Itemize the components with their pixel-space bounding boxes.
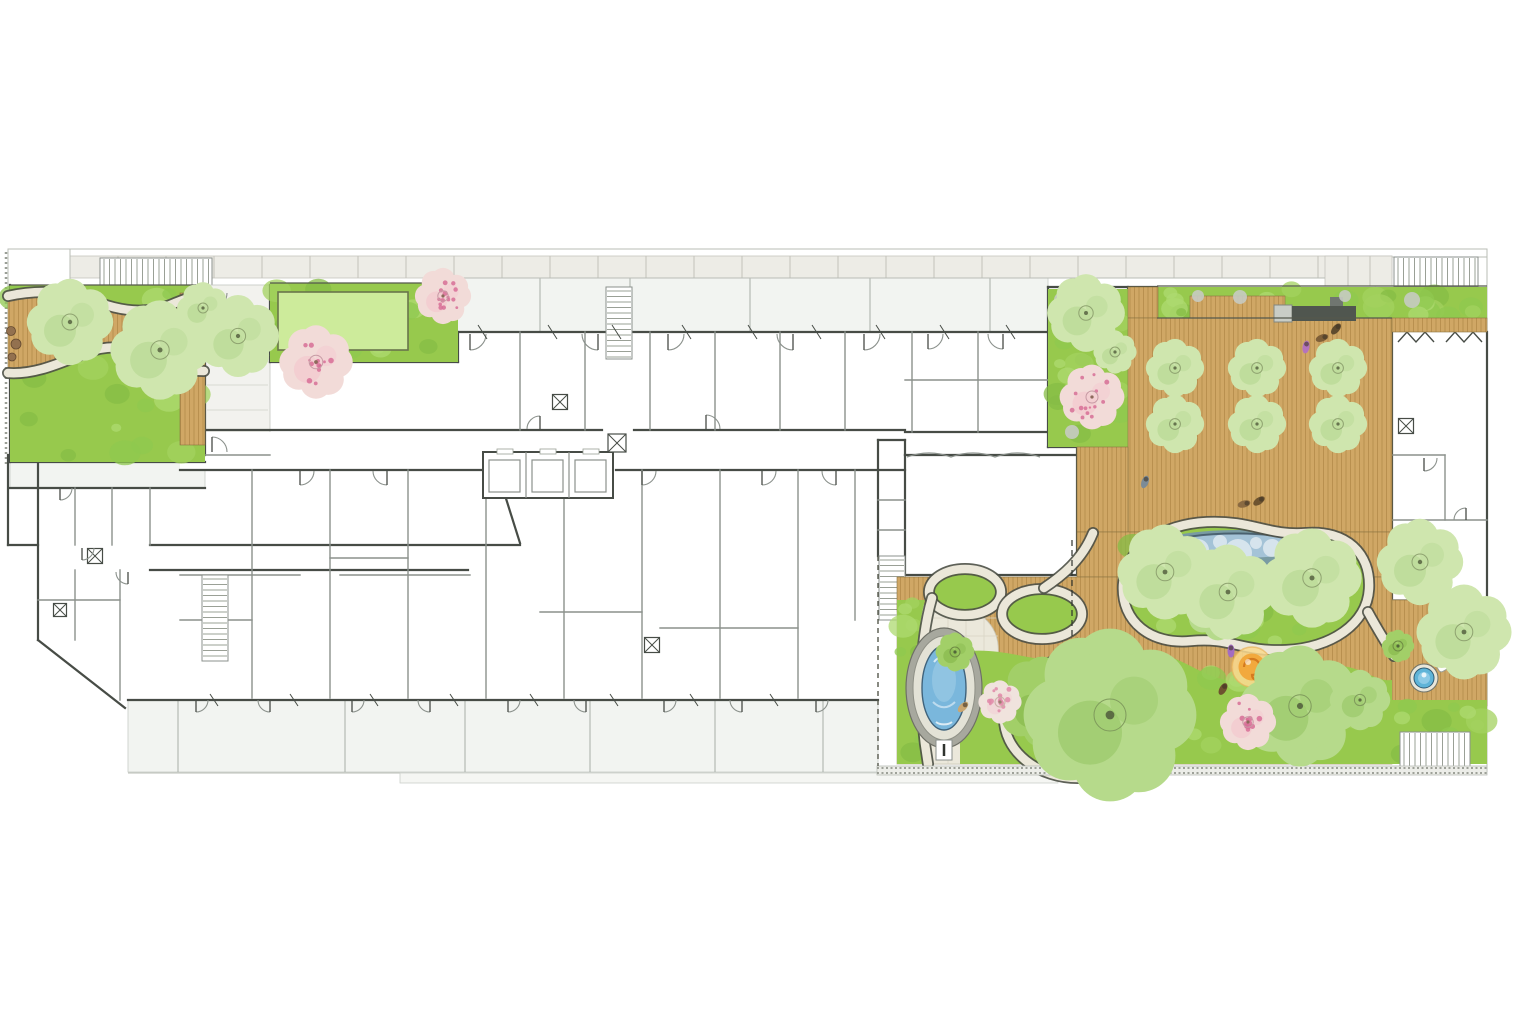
spa-sparkle: [1422, 673, 1427, 678]
tree-trunk: [1255, 366, 1258, 369]
tree-trunk: [1226, 590, 1231, 595]
blossom-dot: [451, 297, 455, 301]
boulder: [7, 327, 16, 336]
tree-trunk: [1173, 422, 1176, 425]
door-swing: [300, 471, 314, 485]
blossom-dot: [1080, 376, 1084, 380]
boulder: [11, 339, 21, 349]
blossom-dot: [303, 343, 307, 347]
blossom-dot: [1070, 408, 1075, 413]
shrub-blob: [1176, 308, 1186, 316]
shrub-blob: [1448, 702, 1460, 711]
fire-feature-highlight: [1245, 659, 1251, 665]
blossom-dot: [992, 689, 995, 692]
person-figure: [1228, 645, 1235, 658]
blossom-dot: [309, 343, 314, 348]
tree-trunk: [314, 360, 318, 364]
shrub-blob: [1282, 281, 1302, 297]
elevator-bank: [483, 452, 613, 498]
blossom-dot: [314, 382, 318, 386]
shrub-blob: [1161, 298, 1188, 319]
shrub-blob: [1460, 706, 1476, 719]
tree-trunk: [1163, 570, 1168, 575]
blossom-dot: [1074, 392, 1078, 396]
door-swing: [762, 471, 776, 485]
left-terrace-strip: [10, 462, 205, 488]
blossom-dot: [1081, 416, 1085, 420]
tree-trunk: [1309, 575, 1314, 580]
blossom-dot: [1006, 687, 1011, 692]
blossom-dot: [328, 358, 334, 364]
tree-trunk: [236, 334, 240, 338]
folding-door-zigzag: [1398, 332, 1482, 342]
door-swing: [116, 572, 128, 584]
tree-trunk: [1113, 350, 1116, 353]
tree-trunk: [1358, 698, 1361, 701]
tree-trunk: [1336, 366, 1339, 369]
deck-band-east: [1392, 318, 1487, 332]
shrub-blob: [20, 412, 38, 426]
door-swing: [470, 334, 486, 350]
shrub-blob: [419, 339, 437, 354]
exterior-wall: [38, 640, 125, 708]
shrub-blob: [61, 449, 76, 461]
blossom-dot: [453, 287, 457, 291]
lower-terrace-row: [128, 700, 878, 772]
blossom-dot: [1005, 697, 1010, 702]
elevator-door: [497, 449, 513, 454]
door-swing: [706, 415, 720, 429]
tree-trunk: [953, 650, 956, 653]
shrub-blob: [898, 603, 912, 614]
blossom-dot: [1084, 406, 1088, 410]
blossom-dot: [1089, 406, 1091, 408]
door-swing: [822, 471, 836, 485]
bench-planter: [1274, 305, 1292, 322]
blossom-dot: [451, 281, 455, 285]
blossom-dot: [323, 360, 326, 363]
shrub-blob: [1363, 294, 1395, 319]
gray-shrub: [1065, 425, 1079, 439]
bench: [1292, 306, 1356, 321]
person-head: [1229, 646, 1234, 651]
upper-terrace-row: [455, 278, 1048, 332]
shrub-blob: [1471, 720, 1485, 731]
tree-trunk: [1336, 422, 1339, 425]
tree-trunk: [1173, 366, 1176, 369]
shrub-blob: [1394, 711, 1410, 724]
roof-walkway-band: [8, 256, 1392, 278]
blossom-dot: [1104, 380, 1109, 385]
shrub-blob: [1163, 287, 1177, 298]
door-swing: [642, 471, 656, 485]
door-swing: [988, 334, 1003, 349]
shrub-blob: [109, 440, 140, 465]
shrub-blob: [889, 615, 918, 638]
blossom-dot: [997, 709, 1000, 712]
tree-trunk: [1246, 720, 1249, 723]
door-swing: [1424, 458, 1437, 471]
site-plan-svg: [0, 0, 1536, 1027]
blossom-dot: [1237, 702, 1240, 705]
shrub-blob: [1201, 737, 1222, 754]
shrub-blob: [105, 384, 130, 404]
tree-trunk: [201, 306, 204, 309]
tree-trunk: [1255, 422, 1258, 425]
blossom-dot: [1086, 411, 1090, 415]
door-swing: [60, 488, 72, 500]
blossom-dot: [987, 699, 992, 704]
shrub-blob: [111, 424, 121, 432]
door-swing: [527, 416, 540, 429]
shrub-blob: [1156, 618, 1176, 634]
stair-outline: [606, 287, 632, 359]
blossom-dot: [443, 280, 448, 285]
door-swing: [1454, 508, 1466, 520]
door-swing: [928, 334, 943, 349]
blossom-dot: [307, 378, 313, 384]
blossom-dot: [455, 306, 458, 309]
door-swing: [668, 334, 684, 350]
door-swing: [864, 334, 880, 350]
tree-shade: [1115, 342, 1127, 354]
gray-shrub: [1192, 290, 1204, 302]
tree-trunk: [68, 320, 72, 324]
site-plan-sheet: [0, 0, 1536, 1027]
boulder: [8, 353, 16, 361]
blossom-dot: [438, 305, 443, 310]
blossom-dot: [1079, 406, 1084, 411]
elevator-door: [540, 449, 556, 454]
tree-trunk: [441, 294, 444, 297]
tree-trunk: [1090, 395, 1093, 398]
tree-trunk: [1297, 703, 1303, 709]
tree-trunk: [1396, 644, 1399, 647]
blossom-dot: [1092, 373, 1095, 376]
blossom-dot: [1093, 405, 1096, 408]
shrub-blob: [1054, 359, 1065, 368]
shrub-blob: [1465, 305, 1481, 318]
tree-trunk: [1462, 630, 1467, 635]
elevator-door: [583, 449, 599, 454]
deck-arm: [1128, 287, 1158, 318]
tree-trunk: [998, 700, 1001, 703]
tree-trunk: [1106, 711, 1115, 720]
walkway-tiles-right: [1325, 256, 1392, 286]
tree-trunk: [157, 347, 162, 352]
shrub-blob: [895, 647, 907, 656]
blossom-dot: [1257, 716, 1263, 722]
deck-arm-west: [1077, 447, 1128, 532]
door-swing: [373, 471, 387, 485]
gray-shrub: [1339, 290, 1351, 302]
tree-trunk: [1084, 311, 1088, 315]
blossom-dot: [1248, 708, 1251, 711]
shrub-blob: [137, 398, 154, 412]
water-mist: [1250, 537, 1262, 549]
blossom-dot: [1090, 415, 1094, 419]
gray-shrub: [1233, 290, 1247, 304]
tree-trunk: [1418, 560, 1422, 564]
blossom-dot: [1101, 400, 1105, 404]
gray-shrub: [1404, 292, 1420, 308]
